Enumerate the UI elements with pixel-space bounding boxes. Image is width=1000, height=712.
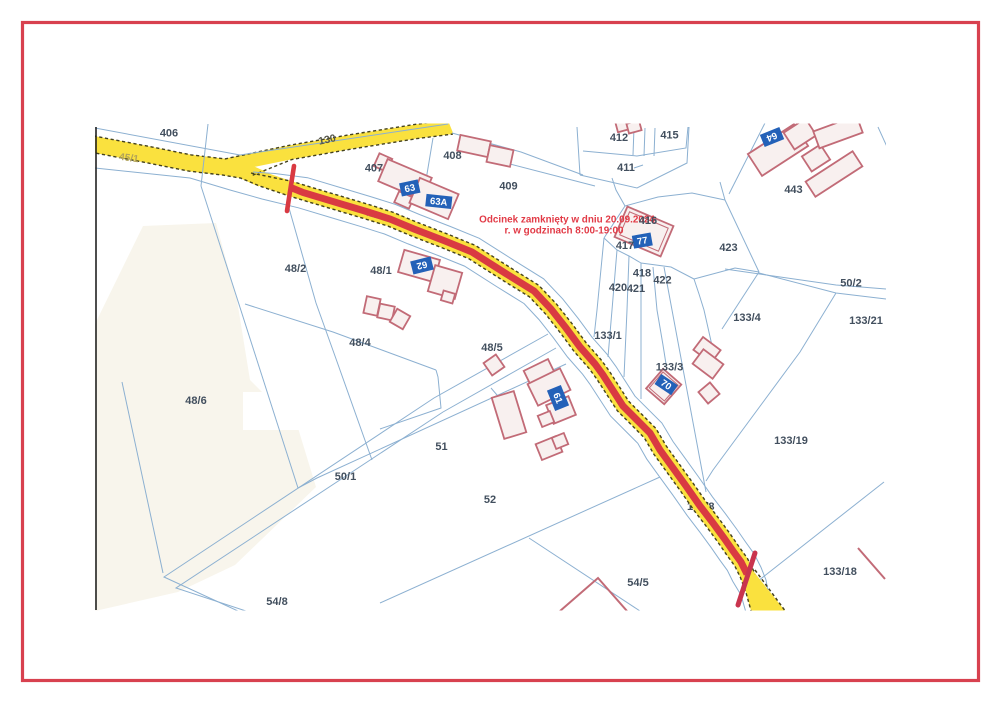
svg-text:409: 409 xyxy=(499,180,517,192)
svg-text:417: 417 xyxy=(616,240,634,252)
svg-text:416: 416 xyxy=(639,215,657,227)
svg-text:77: 77 xyxy=(636,235,648,248)
svg-text:133/3: 133/3 xyxy=(656,361,684,373)
svg-text:421: 421 xyxy=(627,283,645,295)
svg-text:133/1: 133/1 xyxy=(594,330,622,342)
svg-text:408: 408 xyxy=(443,150,461,162)
svg-text:420: 420 xyxy=(609,282,627,294)
svg-text:50/1: 50/1 xyxy=(335,471,356,483)
svg-text:51: 51 xyxy=(435,441,447,453)
svg-text:133/19: 133/19 xyxy=(774,435,808,447)
svg-text:133/4: 133/4 xyxy=(733,312,761,324)
svg-text:418: 418 xyxy=(633,267,651,279)
svg-text:63A: 63A xyxy=(429,196,448,209)
svg-text:133/21: 133/21 xyxy=(849,315,883,327)
svg-text:415: 415 xyxy=(660,129,678,141)
svg-text:48/2: 48/2 xyxy=(285,263,306,275)
svg-text:443: 443 xyxy=(784,184,802,196)
svg-text:Odcinek zamknięty w dniu 20.09: Odcinek zamknięty w dniu 20.09.2024 xyxy=(479,214,655,225)
svg-text:54/8: 54/8 xyxy=(266,596,287,608)
svg-text:48/5: 48/5 xyxy=(481,342,502,354)
svg-text:412: 412 xyxy=(610,132,628,144)
svg-text:407: 407 xyxy=(365,162,383,174)
svg-text:48/6: 48/6 xyxy=(185,395,206,407)
svg-text:411: 411 xyxy=(617,162,635,174)
svg-text:52: 52 xyxy=(484,494,496,506)
svg-text:422: 422 xyxy=(653,274,671,286)
svg-text:63: 63 xyxy=(404,182,417,195)
svg-text:48/1: 48/1 xyxy=(370,265,391,277)
svg-text:48/4: 48/4 xyxy=(349,337,371,349)
svg-text:406: 406 xyxy=(160,127,178,139)
svg-text:133/18: 133/18 xyxy=(823,566,857,578)
svg-text:50/2: 50/2 xyxy=(840,277,861,289)
svg-text:423: 423 xyxy=(719,242,737,254)
svg-text:r. w godzinach 8:00-19:00: r. w godzinach 8:00-19:00 xyxy=(504,226,624,237)
svg-text:54/5: 54/5 xyxy=(627,577,648,589)
